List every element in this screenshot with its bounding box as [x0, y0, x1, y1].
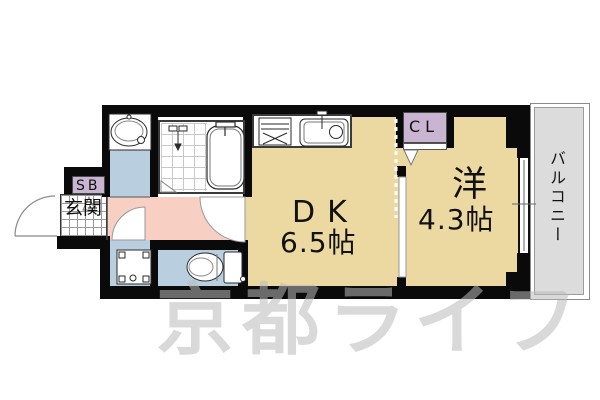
- washbasin-icon: [109, 114, 151, 150]
- closet-label: CL: [409, 119, 439, 135]
- kitchen-sink-icon: [300, 111, 348, 146]
- door-swing-dk-icon: [200, 197, 245, 242]
- shoe-box-label: SB: [76, 179, 101, 193]
- floor-plan: DK 6.5帖 洋 4.3帖 CL SB 玄関 バルコニー 京都ライフ: [0, 0, 600, 400]
- dk-room-size: 6.5帖: [280, 229, 357, 257]
- watermark-text: 京都ライフ: [156, 258, 586, 370]
- washing-machine-icon: [117, 250, 151, 284]
- bathtub-icon: [207, 122, 244, 189]
- balcony-label: バルコニー: [548, 150, 564, 245]
- western-room-label: 洋: [452, 168, 487, 203]
- kitchen-stove-icon: [259, 118, 291, 145]
- entrance-label: 玄関: [64, 199, 102, 218]
- closet-folding-door-icon: [404, 150, 418, 165]
- shower-icon: [169, 126, 187, 150]
- western-room-size: 4.3帖: [418, 206, 495, 234]
- bath-door-icon: [161, 181, 176, 192]
- front-door-icon: [15, 196, 57, 236]
- door-swing-laundry-icon: [112, 207, 145, 240]
- window-icon: [512, 160, 536, 251]
- dk-room-label: DK: [292, 198, 359, 228]
